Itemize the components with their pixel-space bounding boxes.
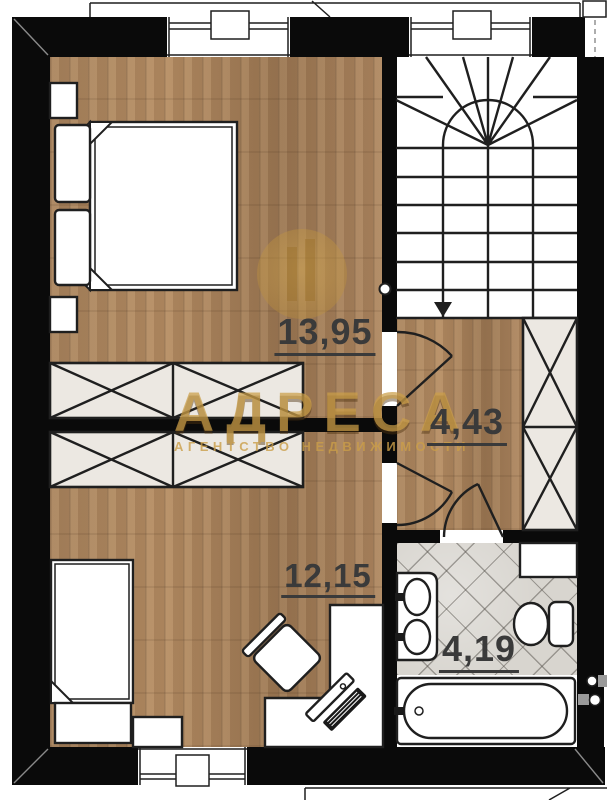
toilet bbox=[514, 602, 573, 646]
nightstand-bottom bbox=[50, 297, 77, 332]
window-bottom bbox=[138, 747, 247, 786]
floor-plan: АДРЕСА АГЕНТСТВО НЕДВИЖИМОСТИ 13,95 4,43… bbox=[0, 0, 608, 800]
double-bed bbox=[79, 122, 237, 290]
window-top-right bbox=[409, 11, 532, 57]
small-stand bbox=[133, 717, 182, 747]
hall-wardrobe bbox=[523, 318, 577, 530]
wardrobe-upper bbox=[50, 363, 303, 418]
room-area-bedroom-bottom: 12,15 bbox=[281, 559, 375, 598]
wardrobe-lower bbox=[50, 432, 303, 487]
dresser bbox=[55, 703, 131, 743]
utility-pipes bbox=[578, 675, 607, 706]
door-arc-bedroom-bottom bbox=[397, 463, 452, 525]
staircase bbox=[396, 57, 577, 318]
roof-outline-bottom bbox=[305, 788, 607, 800]
pillow-1 bbox=[55, 125, 90, 202]
wall-marker-dot bbox=[380, 284, 391, 295]
door-arc-bedroom-top bbox=[397, 332, 452, 406]
desk-chair bbox=[242, 613, 324, 695]
vanity-double-sink bbox=[395, 573, 437, 660]
door-arc-bathroom bbox=[444, 484, 503, 537]
stairs-down-arrow bbox=[434, 302, 452, 317]
pillow-2 bbox=[55, 210, 90, 285]
bathroom-shelf bbox=[520, 543, 577, 577]
nightstand-top bbox=[50, 83, 77, 118]
single-bed bbox=[51, 560, 133, 703]
room-area-hallway: 4,43 bbox=[427, 404, 507, 446]
window-top-left bbox=[167, 11, 290, 57]
room-area-bathroom: 4,19 bbox=[439, 631, 519, 673]
room-area-bedroom-top: 13,95 bbox=[274, 314, 375, 356]
bathtub bbox=[394, 678, 575, 744]
